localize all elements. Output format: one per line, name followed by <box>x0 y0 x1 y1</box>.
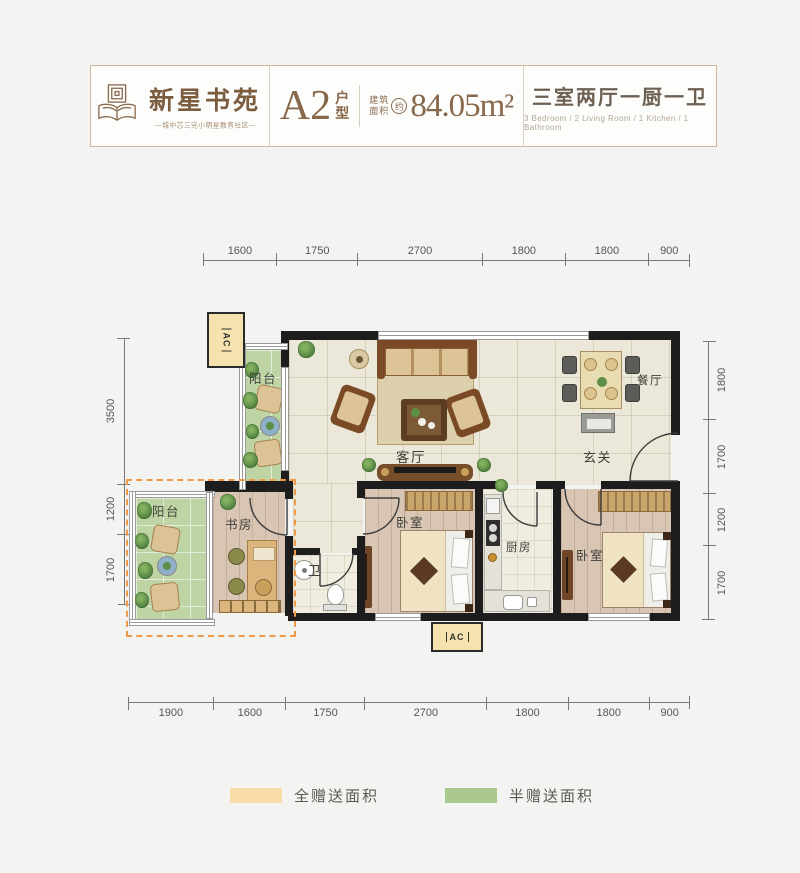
wall <box>357 536 365 613</box>
wall <box>601 481 678 489</box>
brand-tagline: —城中芯三完小明星教育社区— <box>154 121 255 130</box>
balcony-stool <box>254 384 285 415</box>
divider <box>359 85 360 127</box>
dimension-value: 1750 <box>277 245 358 257</box>
dimension-segment: 1600 <box>203 240 277 261</box>
coffee-table <box>401 399 447 441</box>
wardrobe <box>405 491 473 511</box>
dimension-value: 900 <box>648 245 690 257</box>
dimension-segment: 2700 <box>365 702 487 723</box>
dimension-segment: 1750 <box>286 702 365 723</box>
logo-section: 新星书苑 —城中芯三完小明星教育社区— <box>91 66 269 146</box>
dimension-value: 1700 <box>105 557 117 581</box>
sofa-arm <box>377 337 385 379</box>
dimension-segment: 1800 <box>568 702 649 723</box>
unit-suffix: 户型 <box>334 91 350 120</box>
legend-item: 半赠送面积 <box>445 785 594 806</box>
dimension-segment: 900 <box>649 702 690 723</box>
kitchen-bowl <box>488 553 497 562</box>
dimension-segment: 1800 <box>482 240 565 261</box>
balcony-slider-window <box>281 367 289 471</box>
fridge <box>486 498 500 514</box>
dimension-value: 1700 <box>716 571 728 595</box>
window <box>588 613 650 621</box>
dimension-value: 1200 <box>716 507 728 531</box>
wall <box>553 489 561 613</box>
legend-item: 全赠送面积 <box>230 785 379 806</box>
legend-swatch <box>230 788 282 803</box>
shoe-cabinet <box>581 413 615 433</box>
window <box>375 613 421 621</box>
tv-cabinet <box>377 464 473 481</box>
dimension-value: 1700 <box>716 444 728 468</box>
dimension-segment: 900 <box>648 240 690 261</box>
wall <box>281 331 378 340</box>
room-label-balcony-top: 阳台 <box>249 368 277 387</box>
legend-swatch <box>445 788 497 803</box>
dimension-segment: 1750 <box>277 240 358 261</box>
gift-area-dashed-outline <box>126 479 296 637</box>
dimension-value: 1900 <box>128 707 214 719</box>
room-label-living: 客厅 <box>396 446 426 466</box>
corridor-floor <box>293 483 363 553</box>
balcony-table <box>260 416 280 436</box>
dimension-value: 1600 <box>203 245 277 257</box>
dimension-value: 1600 <box>214 707 286 719</box>
wall <box>671 481 680 621</box>
dimension-value: 1750 <box>286 707 365 719</box>
dimension-value: 1800 <box>482 245 565 257</box>
plant <box>477 458 491 472</box>
dimension-segment: 1800 <box>708 341 730 419</box>
layout-en: 3 Bedroom / 2 Living Room / 1 Kitchen / … <box>524 114 716 132</box>
dimension-segment: 1700 <box>708 419 730 493</box>
dimension-segment: 1600 <box>214 702 286 723</box>
dimension-segment: 1800 <box>487 702 568 723</box>
room-label-dining: 餐厅 <box>637 372 663 388</box>
legend-label: 半赠送面积 <box>509 785 594 806</box>
wall <box>536 481 565 489</box>
wall <box>588 331 680 340</box>
balcony-stool <box>253 438 282 467</box>
plant <box>246 424 259 439</box>
header: 新星书苑 —城中芯三完小明星教育社区— A2 户型 建筑面积 约 84.05m²… <box>90 65 717 147</box>
wall <box>293 548 320 555</box>
ac-unit-bottom: AC <box>431 622 483 652</box>
legend: 全赠送面积半赠送面积 <box>230 785 594 806</box>
dimension-segment: 1800 <box>565 240 648 261</box>
bed <box>400 530 473 612</box>
dining-chair <box>562 356 577 374</box>
dimension-value: 2700 <box>358 245 483 257</box>
tv-stand <box>562 550 573 600</box>
area-approx-badge: 约 <box>391 98 407 114</box>
plant <box>495 479 508 492</box>
dimension-line-left: 350012001700 <box>103 338 125 605</box>
ac-label: AC <box>446 632 469 642</box>
dining-table <box>580 351 622 409</box>
dimension-segment: 1200 <box>708 494 730 546</box>
brand-title: 新星书苑 <box>149 81 261 117</box>
room-label-bedroom-mid: 卧室 <box>396 512 424 531</box>
wall <box>671 331 680 435</box>
dimension-segment: 2700 <box>358 240 483 261</box>
dimension-value: 900 <box>649 707 690 719</box>
sofa-seats <box>385 348 469 376</box>
dimension-value: 1800 <box>487 707 568 719</box>
dimension-value: 2700 <box>365 707 487 719</box>
wall <box>475 489 483 613</box>
dimension-line-right: 1800170012001700 <box>708 341 730 620</box>
window <box>378 331 589 340</box>
dimension-segment: 1900 <box>128 702 214 723</box>
stove <box>486 520 500 546</box>
dining-chair <box>562 384 577 402</box>
plant <box>243 452 258 468</box>
layout-section: 三室两厅一厨一卫 3 Bedroom / 2 Living Room / 1 K… <box>523 66 716 146</box>
dimension-segment: 1200 <box>103 484 125 534</box>
room-label-bedroom-right: 卧室 <box>576 545 604 564</box>
toilet-tank <box>323 604 347 611</box>
wall <box>363 481 502 489</box>
dimension-line-bottom: 190016001750270018001800900 <box>128 702 690 723</box>
kitchen-sink-counter <box>484 590 550 612</box>
area-value: 84.05m² <box>410 88 513 125</box>
ac-label: AC <box>221 329 231 352</box>
legend-label: 全赠送面积 <box>294 785 379 806</box>
dimension-segment: 3500 <box>103 338 125 484</box>
round-mat <box>349 349 369 369</box>
dimension-value: 1800 <box>565 245 648 257</box>
dimension-value: 1200 <box>105 497 117 521</box>
balcony-frame <box>239 343 288 350</box>
plant <box>362 458 376 472</box>
unit-section: A2 户型 建筑面积 约 84.05m² <box>269 66 523 146</box>
room-label-entry: 玄关 <box>583 447 612 466</box>
plant <box>298 341 315 358</box>
dimension-segment: 1700 <box>708 546 730 620</box>
dimension-value: 3500 <box>105 399 117 423</box>
book-logo-icon <box>96 83 138 130</box>
dimension-value: 1800 <box>716 368 728 392</box>
plant <box>243 392 258 409</box>
toilet <box>327 584 344 605</box>
ac-unit-top: AC <box>207 312 245 368</box>
sofa-arm <box>469 337 477 379</box>
area-label: 建筑面积 <box>369 95 390 117</box>
dimension-line-top: 16001750270018001800900 <box>203 240 690 261</box>
room-label-bath: 卫 <box>308 560 322 579</box>
floor-plan-page: 新星书苑 —城中芯三完小明星教育社区— A2 户型 建筑面积 约 84.05m²… <box>0 0 800 873</box>
room-label-kitchen: 厨房 <box>506 539 532 555</box>
unit-code: A2 <box>280 82 331 130</box>
wardrobe <box>598 491 671 512</box>
bed <box>602 532 671 608</box>
dimension-segment: 1700 <box>103 534 125 605</box>
layout-cn: 三室两厅一厨一卫 <box>532 81 708 110</box>
dimension-value: 1800 <box>568 707 649 719</box>
